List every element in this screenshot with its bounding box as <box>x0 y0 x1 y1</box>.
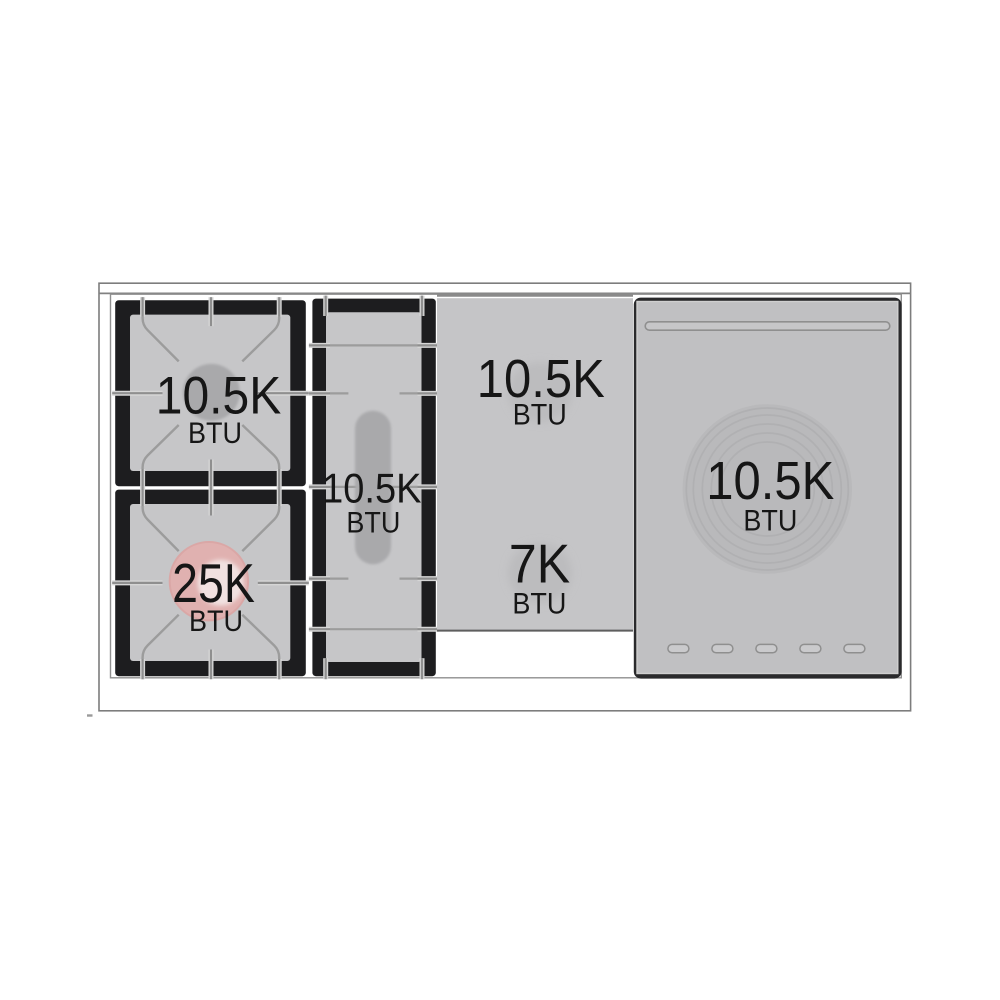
svg-text:BTU: BTU <box>513 398 567 431</box>
svg-text:BTU: BTU <box>188 417 242 450</box>
svg-text:BTU: BTU <box>743 504 797 537</box>
svg-text:BTU: BTU <box>189 605 243 638</box>
svg-text:7K: 7K <box>509 533 570 595</box>
svg-text:BTU: BTU <box>512 587 566 620</box>
svg-text:10.5K: 10.5K <box>706 450 834 511</box>
svg-text:10.5K: 10.5K <box>322 466 422 512</box>
svg-text:BTU: BTU <box>346 506 400 539</box>
